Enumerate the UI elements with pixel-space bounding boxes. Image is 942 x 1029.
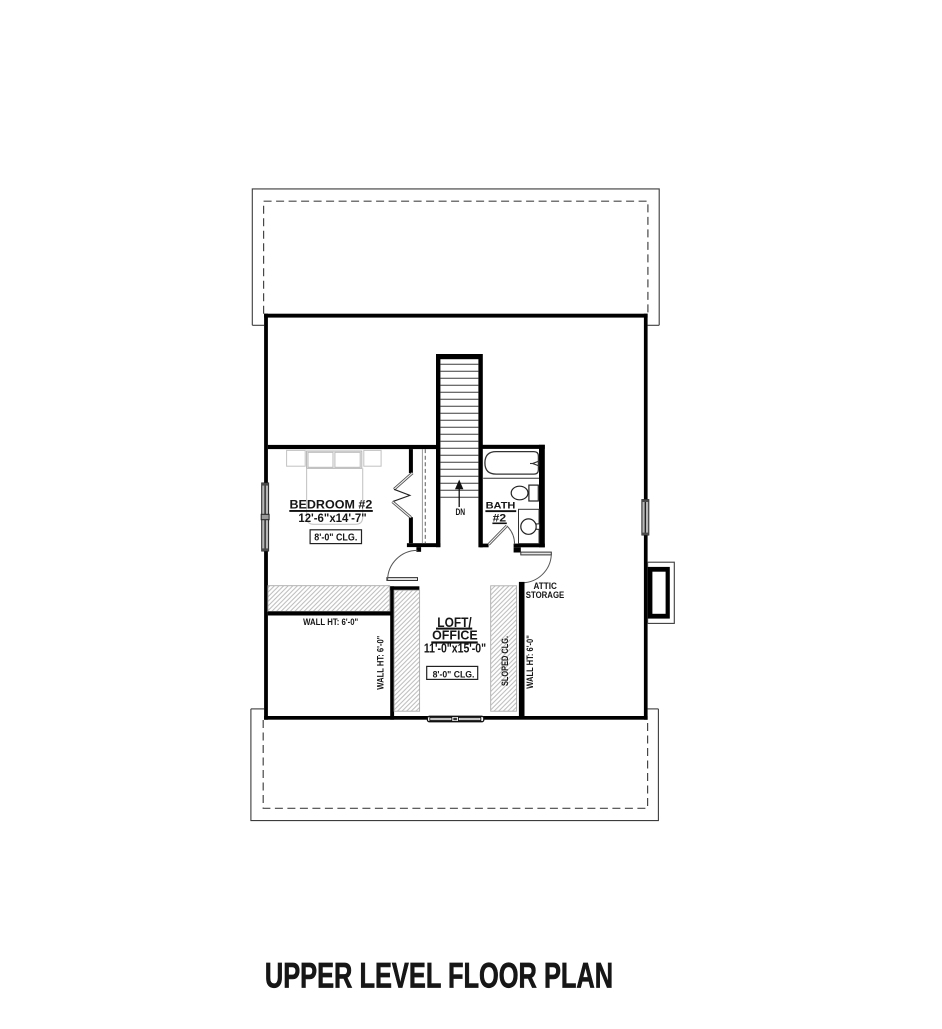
- svg-text:DN: DN: [455, 507, 465, 517]
- svg-text:STORAGE: STORAGE: [526, 589, 565, 600]
- svg-text:BEDROOM #2: BEDROOM #2: [290, 498, 373, 511]
- svg-text:SLOPED CLG.: SLOPED CLG.: [500, 636, 510, 686]
- svg-text:WALL HT: 6'-0": WALL HT: 6'-0": [303, 617, 358, 627]
- svg-text:UPPER LEVEL FLOOR PLAN: UPPER LEVEL FLOOR PLAN: [265, 956, 613, 995]
- svg-text:8'-0" CLG.: 8'-0" CLG.: [433, 669, 475, 680]
- svg-text:11'-0"x15'-0": 11'-0"x15'-0": [424, 641, 486, 656]
- svg-text:BATH: BATH: [486, 500, 516, 510]
- svg-text:WALL HT: 6'-0": WALL HT: 6'-0": [525, 635, 535, 689]
- svg-text:12'-6"x14'-7": 12'-6"x14'-7": [298, 512, 366, 525]
- svg-text:8'-0" CLG.: 8'-0" CLG.: [314, 533, 357, 544]
- svg-text:WALL HT: 6'-0": WALL HT: 6'-0": [376, 636, 386, 690]
